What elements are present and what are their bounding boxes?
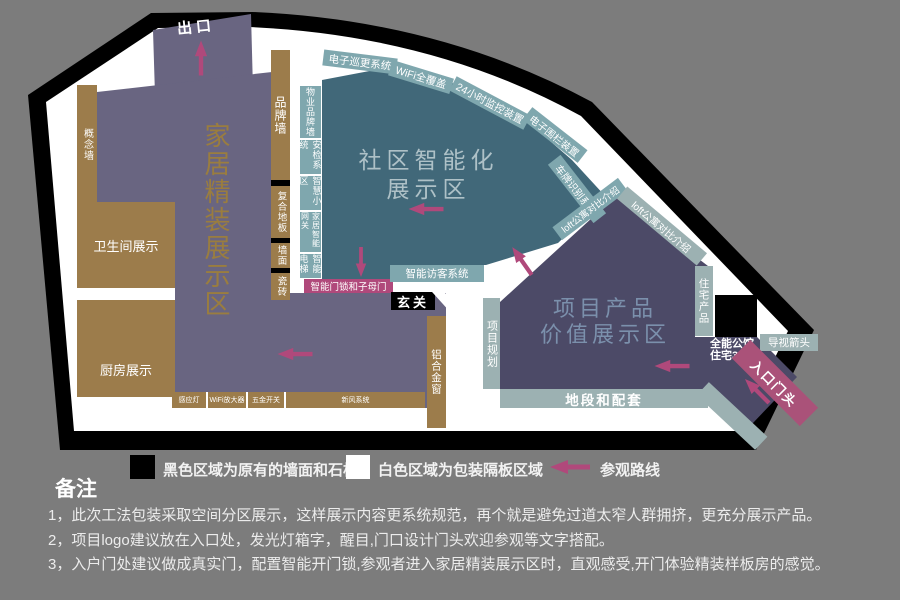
composite-floor-strip: 复合地板 xyxy=(271,186,290,238)
partition-gap xyxy=(77,288,175,300)
brand-wall-strip: 品牌墙 xyxy=(271,50,290,180)
visitor-system-strip: 智能访客系统 xyxy=(390,265,484,282)
hallway-bar: 玄关 xyxy=(391,292,435,310)
hardware-switch-segment: 五金开关 xyxy=(248,392,284,408)
project-route-arrow-icon xyxy=(654,359,690,373)
fresh-air-segment: 新风系统 xyxy=(286,392,425,408)
wifi-amplifier-segment: WiFi放大器 xyxy=(208,392,246,408)
legend-route-arrow-icon xyxy=(547,459,593,475)
notes-title: 备注 xyxy=(55,473,97,503)
project-zone-title: 项目产品 价值展示区 xyxy=(515,296,695,348)
guide-arrow-strip: 导视箭头 xyxy=(760,334,818,351)
floor-plan-slide: 出口 概念墙 卫生间展示 厨房展示 家居精装展示区 品牌墙 复合地板 墙面 瓷砖… xyxy=(0,0,900,600)
brand-wall-column: 品牌墙 复合地板 墙面 瓷砖 xyxy=(271,50,290,300)
project-zone-title-line2: 价值展示区 xyxy=(515,322,695,348)
home-zone-title: 家居精装展示区 xyxy=(198,112,235,327)
security-check-strip: 安检系统 xyxy=(300,140,321,174)
note-line-3: 3，入户门处建议做成真实门，配置智能开门锁,参观者进入家居精装展示区时，直观感受… xyxy=(48,553,830,574)
sensor-light-segment: 感应灯 xyxy=(172,392,206,408)
exit-route-arrow-icon xyxy=(194,40,208,76)
residential-product-strip: 住宅产品 xyxy=(695,266,713,336)
legend-white-label: 白色区域为包装隔板区域 xyxy=(378,459,543,480)
note-line-2: 2，项目logo建议放在入口处，发光灯箱字，醒目,门口设计门头欢迎参观等文字搭配… xyxy=(48,529,614,550)
smart-doorlock-bar: 智能门锁和子母门 xyxy=(304,279,393,293)
community-zone-title-line1: 社区智能化 xyxy=(336,146,521,175)
tile-strip: 瓷砖 xyxy=(271,273,290,300)
kitchen-display-block: 厨房展示 xyxy=(77,300,175,397)
legend-black-swatch xyxy=(130,455,155,479)
smart-gateway-strip: 家居智能网关 xyxy=(300,212,321,252)
community-zone-title-line2: 展示区 xyxy=(336,175,521,204)
legend-route-label: 参观路线 xyxy=(600,459,660,480)
smart-community-strip: 智慧小区 xyxy=(300,176,321,210)
location-strip: 地段和配套 xyxy=(500,389,708,408)
community-zone-title: 社区智能化 展示区 xyxy=(336,146,521,204)
home-route-arrow-icon xyxy=(277,347,313,361)
legend-white-swatch xyxy=(346,455,370,479)
property-brand-wall-strip: 物业品牌墙 xyxy=(300,86,321,138)
aluminum-window-strip: 铝合金窗 xyxy=(427,316,446,428)
note-line-1: 1，此次工法包装采取空间分区展示，这样展示内容更系统规范，再个就是避免过道太窄人… xyxy=(48,504,821,525)
smart-feature-column: 物业品牌墙 安检系统 智慧小区 家居智能网关 智能电梯 xyxy=(300,86,321,278)
stone-pillar xyxy=(715,295,757,337)
doorlock-route-arrow-icon xyxy=(354,247,368,277)
legend-black-label: 黑色区域为原有的墙面和石柱 xyxy=(163,459,358,480)
community-route-arrow-icon xyxy=(408,202,444,216)
wall-face-strip: 墙面 xyxy=(271,243,290,268)
project-planning-strip: 项目规划 xyxy=(483,298,500,389)
fixtures-strip: 感应灯 WiFi放大器 五金开关 新风系统 xyxy=(172,392,425,408)
concept-wall-strip: 概念墙 xyxy=(77,85,97,203)
project-zone-title-line1: 项目产品 xyxy=(515,296,695,322)
bathroom-display-block: 卫生间展示 xyxy=(77,202,175,288)
smart-elevator-strip: 智能电梯 xyxy=(300,254,321,278)
